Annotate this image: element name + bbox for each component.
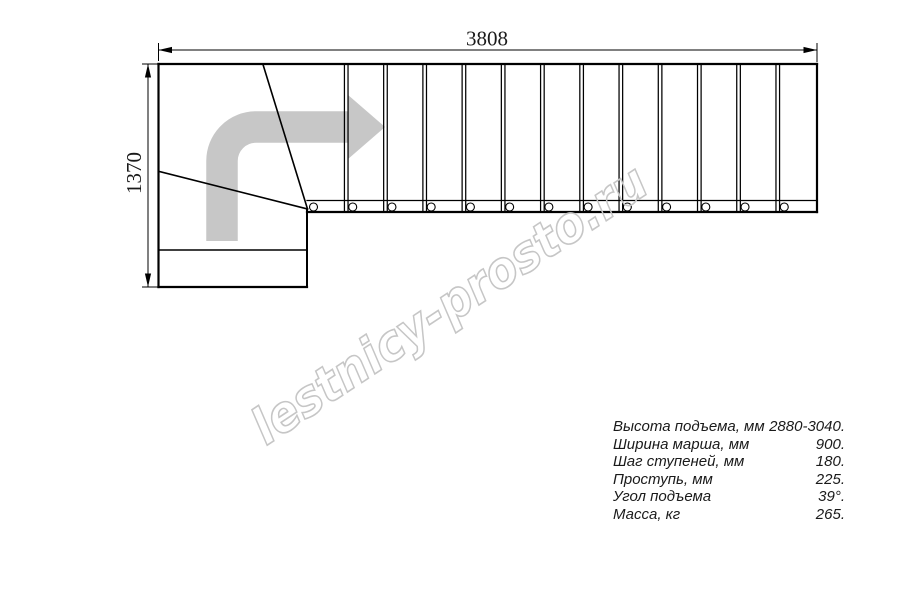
- spec-value: 2880-3040.: [769, 418, 845, 436]
- tread-lines-layer: [310, 65, 789, 211]
- technical-drawing-canvas: 3808 1370 lestnicy-prosto.ru Высота подъ…: [0, 0, 900, 600]
- spec-label: Ширина марша, мм: [613, 436, 749, 454]
- left-dimension-label: 1370: [122, 152, 146, 194]
- stringer-bolt-circle: [780, 203, 788, 211]
- spec-value: 39°.: [818, 488, 845, 506]
- spec-label: Угол подъема: [613, 488, 711, 506]
- spec-value: 265.: [816, 506, 845, 524]
- spec-value: 900.: [816, 436, 845, 454]
- spec-label: Высота подъема, мм: [613, 418, 765, 436]
- left-dim-arrow-bottom: [145, 274, 151, 288]
- spec-value: 225.: [816, 471, 845, 489]
- spec-label: Шаг ступеней, мм: [613, 453, 744, 471]
- top-dim-arrow-left: [159, 47, 173, 53]
- spec-row-flight-width: Ширина марша, мм 900.: [613, 436, 845, 454]
- spec-row-height: Высота подъема, мм 2880-3040.: [613, 418, 845, 436]
- spec-label: Масса, кг: [613, 506, 680, 524]
- stringer-bolt-circle: [349, 203, 357, 211]
- stringer-bolt-circle: [427, 203, 435, 211]
- spec-label: Проступь, мм: [613, 471, 713, 489]
- spec-table: Высота подъема, мм 2880-3040. Ширина мар…: [613, 418, 845, 524]
- direction-arrow-shaft: [222, 127, 348, 241]
- stringer-bolt-circle: [506, 203, 514, 211]
- direction-arrow-head: [348, 95, 386, 160]
- stringer-bolt-circle: [663, 203, 671, 211]
- watermark-text: lestnicy-prosto.ru: [241, 153, 658, 456]
- stringer-bolt-circle: [388, 203, 396, 211]
- stringer-bolt-circle: [741, 203, 749, 211]
- left-dim-arrow-top: [145, 64, 151, 78]
- spec-row-mass: Масса, кг 265.: [613, 506, 845, 524]
- stringer-bolt-circle: [702, 203, 710, 211]
- top-dim-arrow-right: [804, 47, 818, 53]
- spec-row-tread-depth: Проступь, мм 225.: [613, 471, 845, 489]
- stringer-bolt-circle: [310, 203, 318, 211]
- spec-value: 180.: [816, 453, 845, 471]
- direction-arrow-icon: [222, 95, 385, 242]
- spec-row-angle: Угол подъема 39°.: [613, 488, 845, 506]
- spec-row-step-rise: Шаг ступеней, мм 180.: [613, 453, 845, 471]
- top-dimension-label: 3808: [466, 27, 508, 51]
- stringer-bolt-circle: [466, 203, 474, 211]
